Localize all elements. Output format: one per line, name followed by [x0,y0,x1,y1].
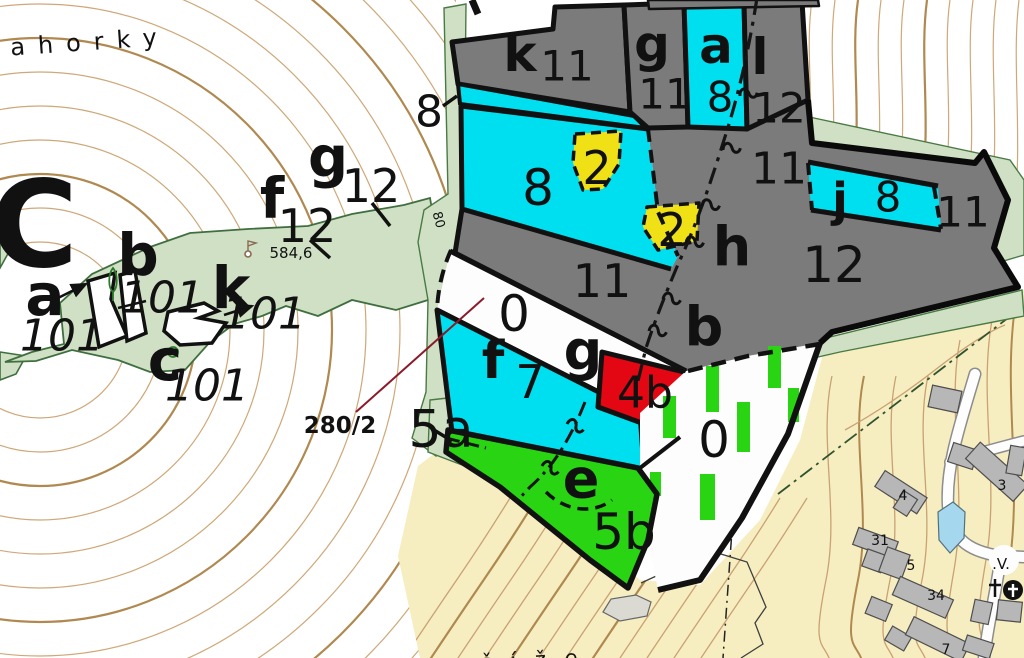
label-stand-f-cyan: f [482,331,506,391]
label-stand-g-band: g [634,15,670,73]
label-age-f7: 7 [515,355,544,409]
label-age-11-hooks: 11 [751,144,807,195]
label-age-g-12: 12 [342,159,401,213]
label-age-0-bars: 0 [698,411,730,469]
house-number-5: 5 [907,558,916,574]
stand-top-sliver [648,0,819,9]
label-stand-l-band: l [751,28,768,86]
label-age-8: 8 [415,87,443,138]
elevation-value: 584,6 [270,244,313,262]
label-age-c-101: 101 [165,361,249,412]
label-age-h12: 12 [802,236,866,294]
label-stand-g-white: g [564,320,603,383]
label-felling-4b: 4b [617,368,673,419]
label-stand-a-band: a [699,17,733,75]
label-stand-j: j [830,173,848,227]
label-age-k11: 11 [540,42,593,91]
label-parcel-5b: 5b [592,503,656,561]
house-number-7: 7 [942,642,951,658]
label-age-cyan-8: 8 [522,159,554,217]
label-age-j8: 8 [875,173,902,222]
house-number-3: 3 [998,478,1007,494]
label-stand-h: h [713,216,751,279]
label-clearcut-2b: 2 [657,203,686,257]
house-number-4: 4 [899,488,908,504]
label-clearcut-2a: 2 [582,141,611,195]
label-age-l12: 12 [752,84,805,133]
house-number-31: 31 [871,533,889,549]
label-age-11-right: 11 [936,188,989,237]
forestry-map: ahorky C a 101 b 101 k 101 c 101 g 12 f … [0,0,1024,658]
label-age-a-101: 101 [20,311,104,362]
label-stand-e: e [563,448,600,511]
chapel-text: .V. [992,555,1010,573]
label-age-k-101: 101 [222,289,306,340]
label-age-11-mid: 11 [573,254,632,308]
label-age-b-101: 101 [120,273,204,324]
label-parcel-5a: 5a [409,400,474,460]
label-age-g11: 11 [638,70,691,119]
map-canvas[interactable]: ahorky C a 101 b 101 k 101 c 101 g 12 f … [0,0,1024,658]
label-age-a8: 8 [707,73,734,122]
house-number-34: 34 [927,588,945,604]
parcel-ref-280-2: 280/2 [304,413,376,439]
label-stand-k-band: k [503,25,538,83]
label-stand-b-gray: b [685,296,724,359]
